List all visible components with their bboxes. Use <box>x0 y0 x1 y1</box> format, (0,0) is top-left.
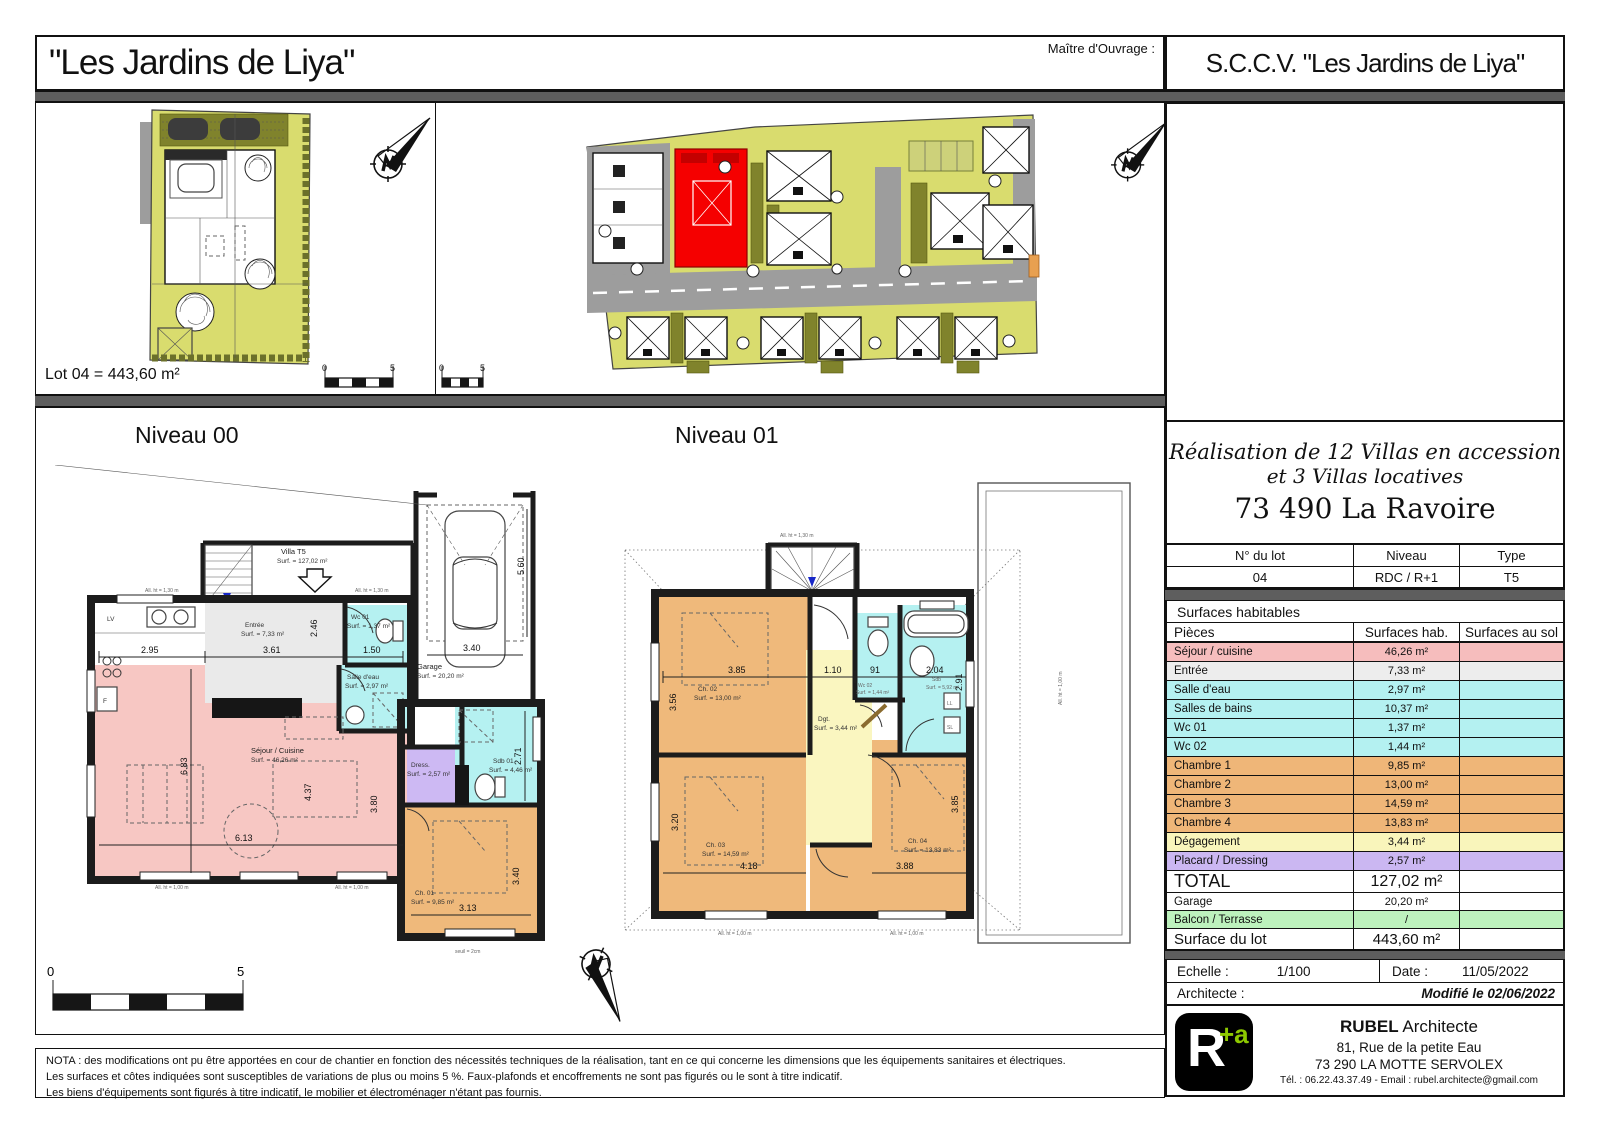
dim-garage-width: 3.40 <box>463 643 481 653</box>
firm-addr2: 73 290 LA MOTTE SERVOLEX <box>1253 1056 1565 1074</box>
svg-text:Wc 02: Wc 02 <box>858 683 872 689</box>
level1-title: Niveau 01 <box>675 422 779 449</box>
lot-table-values: 04 RDC / R+1 T5 <box>1165 567 1565 589</box>
nota-line2: Les surfaces et côtes indiquées sont sus… <box>46 1070 1154 1086</box>
svg-text:4.37: 4.37 <box>303 783 313 801</box>
echelle-date-row: Echelle : 1/100 Date : 11/05/2022 <box>1165 960 1565 983</box>
firm-info: RUBEL Architecte 81, Rue de la petite Ea… <box>1253 1016 1565 1086</box>
separator-band-panel2 <box>1165 950 1565 960</box>
svg-text:0: 0 <box>47 964 54 979</box>
svg-text:All. ht = 1,30 m: All. ht = 1,30 m <box>145 588 179 594</box>
svg-text:SL: SL <box>947 725 953 731</box>
surface-row: Chambre 19,85 m² <box>1165 757 1565 776</box>
parking-rows <box>593 153 663 263</box>
firm-name-rest: Architecte <box>1399 1017 1478 1036</box>
svg-text:All. ht = 1,00 m: All. ht = 1,00 m <box>335 885 369 891</box>
surface-row: Chambre 213,00 m² <box>1165 776 1565 795</box>
svg-text:Surf. = 2,97 m²: Surf. = 2,97 m² <box>345 683 389 690</box>
surfaces-title: Surfaces habitables <box>1165 601 1565 623</box>
plan-sheet: "Les Jardins de Liya" Maître d'Ouvrage :… <box>0 0 1600 1131</box>
nota-line1: NOTA : des modifications ont pu être app… <box>46 1054 1154 1070</box>
surface-row: Chambre 314,59 m² <box>1165 795 1565 814</box>
scale-bar-small-2: 0 5 <box>438 362 488 392</box>
svg-text:2.95: 2.95 <box>141 645 159 655</box>
stair-n01 <box>768 543 857 593</box>
svg-text:Ch. 01: Ch. 01 <box>415 890 435 897</box>
north-arrow-icon <box>558 930 648 1025</box>
owner-name: S.C.C.V. "Les Jardins de Liya" <box>1206 48 1524 79</box>
svg-text:All. ht = 1,00 m: All. ht = 1,00 m <box>155 885 189 891</box>
svg-text:3.20: 3.20 <box>670 813 680 831</box>
right-wing: Dress. Surf. = 2,57 m² Sdb 01 Surf. = 4,… <box>401 703 541 955</box>
surface-row: Séjour / cuisine46,26 m² <box>1165 643 1565 662</box>
lot-header-type: Type <box>1460 545 1563 566</box>
lot-area-label: Lot 04 = 443,60 m² <box>45 366 180 384</box>
level0-title: Niveau 00 <box>135 422 239 449</box>
svg-text:2.04: 2.04 <box>926 665 944 675</box>
balcon-row: Balcon / Terrasse / <box>1165 911 1565 929</box>
villa-block <box>983 205 1033 259</box>
svg-text:2.91: 2.91 <box>954 673 964 691</box>
lot-header-num: N° du lot <box>1167 545 1354 566</box>
villa-block <box>767 213 831 265</box>
svg-text:Surf. = 13,83 m²: Surf. = 13,83 m² <box>904 847 952 854</box>
svg-text:LL: LL <box>947 701 953 707</box>
surface-row: Entrée7,33 m² <box>1165 662 1565 681</box>
svg-text:6.13: 6.13 <box>235 833 253 843</box>
total-row: TOTAL 127,02 m² <box>1165 871 1565 893</box>
villa-surf: Surf. = 127,02 m² <box>277 558 328 565</box>
svg-text:3.56: 3.56 <box>668 693 678 711</box>
svg-text:4.18: 4.18 <box>740 861 758 871</box>
svg-text:2.46: 2.46 <box>309 619 319 637</box>
svg-text:Wc 01: Wc 01 <box>351 614 370 621</box>
lot-value-niveau: RDC / R+1 <box>1354 567 1460 587</box>
surface-row: Chambre 413,83 m² <box>1165 814 1565 833</box>
architecte-row: Architecte : Modifié le 02/06/2022 <box>1165 983 1565 1006</box>
scale-bar-main: 0 5 <box>45 960 255 1018</box>
villa-block <box>983 127 1029 173</box>
firm-contact: Tél. : 06.22.43.37.49 - Email : rubel.ar… <box>1253 1074 1565 1087</box>
svg-text:Dress.: Dress. <box>411 762 430 769</box>
svg-text:3.61: 3.61 <box>263 645 281 655</box>
project-title: "Les Jardins de Liya" <box>49 43 354 83</box>
svg-text:3.80: 3.80 <box>369 795 379 813</box>
kitchen-lv-label: LV <box>107 616 115 623</box>
realisation-line3: 73 490 La Ravoire <box>1234 492 1495 525</box>
plan-niveau01: All. ht = 1,00 m <box>610 465 1140 965</box>
separator-band-mid <box>35 395 1165 407</box>
date-label: Date : <box>1380 964 1428 979</box>
lot-value-num: 04 <box>1167 567 1354 587</box>
date-value: 11/05/2022 <box>1462 964 1529 979</box>
svg-text:2.71: 2.71 <box>513 747 523 765</box>
seuil-note: seuil = 2cm <box>455 949 480 955</box>
svg-text:Surf. = 14,59 m²: Surf. = 14,59 m² <box>702 851 750 858</box>
echelle-value: 1/100 <box>1277 964 1311 979</box>
surface-row: Salles de bains10,37 m² <box>1165 700 1565 719</box>
north-arrow-icon <box>358 108 434 192</box>
col-surfsol: Surfaces au sol <box>1460 623 1563 641</box>
surface-row: Dégagement3,44 m² <box>1165 833 1565 852</box>
lot-table-header: N° du lot Niveau Type <box>1165 545 1565 567</box>
svg-text:1.50: 1.50 <box>363 645 381 655</box>
owner-label: Maître d'Ouvrage : <box>1048 41 1155 56</box>
scale-bar-small: 0 5 <box>320 362 398 392</box>
north-arrow-icon <box>1100 110 1170 194</box>
svg-text:Surf. = 13,00 m²: Surf. = 13,00 m² <box>694 695 742 702</box>
svg-text:Ch. 04: Ch. 04 <box>908 838 928 845</box>
firm-addr1: 81, Rue de la petite Eau <box>1253 1039 1565 1057</box>
svg-text:Surf. = 1,37 m²: Surf. = 1,37 m² <box>347 623 391 630</box>
dim-garage-depth: 5.60 <box>516 557 526 575</box>
svg-text:3.88: 3.88 <box>896 861 914 871</box>
lot-header-niveau: Niveau <box>1354 545 1460 566</box>
plan-niveau00: Garage Surf. = 20,20 m² 3.40 5.60 Villa … <box>55 465 575 975</box>
nota-line3: Les biens d'équipements sont figurés à t… <box>46 1086 1154 1102</box>
svg-text:5: 5 <box>237 964 244 979</box>
firm-logo: R +a <box>1175 1013 1253 1091</box>
modified-label: Modifié le 02/06/2022 <box>1421 986 1563 1001</box>
garage-row: Garage 20,20 m² <box>1165 893 1565 911</box>
svg-text:Surf. = 46,26 m²: Surf. = 46,26 m² <box>251 757 299 764</box>
svg-text:1.10: 1.10 <box>824 665 842 675</box>
separator-band-panel1 <box>1165 589 1565 601</box>
separator-band-top <box>35 91 1565 102</box>
svg-text:3.85: 3.85 <box>728 665 746 675</box>
lot04-highlight <box>675 149 747 267</box>
architecte-label: Architecte : <box>1167 986 1245 1001</box>
svg-text:Surf. = 7,33 m²: Surf. = 7,33 m² <box>241 631 285 638</box>
svg-text:Surf. = 2,57 m²: Surf. = 2,57 m² <box>407 771 451 778</box>
realisation-line1: Réalisation de 12 Villas en accession <box>1169 440 1561 464</box>
title-block-left: "Les Jardins de Liya" Maître d'Ouvrage : <box>35 35 1165 91</box>
col-surfhab: Surfaces hab. <box>1354 623 1460 641</box>
lot-siteplan-drawing <box>140 106 325 368</box>
svg-text:Sdb 01: Sdb 01 <box>493 758 514 765</box>
svg-text:Garage: Garage <box>417 662 442 671</box>
villa-block <box>931 193 989 249</box>
svg-text:Ch. 02: Ch. 02 <box>698 686 718 693</box>
realisation-line2: et 3 Villas locatives <box>1267 464 1464 488</box>
terrace-outline: All. ht = 1,00 m <box>978 483 1130 943</box>
villa-label: Villa T5 <box>281 547 306 556</box>
svg-text:3.13: 3.13 <box>459 903 477 913</box>
svg-text:Séjour / Cuisine: Séjour / Cuisine <box>251 746 304 755</box>
svg-text:All. ht = 1,30 m: All. ht = 1,30 m <box>780 533 814 539</box>
svg-text:All. ht = 1,00 m: All. ht = 1,00 m <box>718 931 752 937</box>
lot-value-type: T5 <box>1460 567 1563 587</box>
svg-text:All. ht = 1,00 m: All. ht = 1,00 m <box>890 931 924 937</box>
svg-text:Surf. = 3,44 m²: Surf. = 3,44 m² <box>814 725 858 732</box>
svg-text:Ch. 03: Ch. 03 <box>706 842 726 849</box>
nota-box: NOTA : des modifications ont pu être app… <box>35 1048 1165 1098</box>
svg-text:6.83: 6.83 <box>179 757 189 775</box>
masterplan-drawing <box>575 105 1045 383</box>
svg-text:Surf. = 9,85 m²: Surf. = 9,85 m² <box>411 899 455 906</box>
svg-text:Sdb: Sdb <box>932 677 941 683</box>
svg-text:All. ht = 1,30 m: All. ht = 1,30 m <box>355 588 389 594</box>
svg-text:3.40: 3.40 <box>511 867 521 885</box>
svg-text:Surf. = 1,44 m²: Surf. = 1,44 m² <box>856 690 890 696</box>
svg-text:All. ht = 1,00 m: All. ht = 1,00 m <box>1058 672 1064 706</box>
svg-text:Surf. = 4,46 m²: Surf. = 4,46 m² <box>489 767 533 774</box>
col-pieces: Pièces <box>1167 623 1354 641</box>
svg-text:Salle d'eau: Salle d'eau <box>347 674 379 681</box>
surface-row: Wc 011,37 m² <box>1165 719 1565 738</box>
surfaces-col-headers: Pièces Surfaces hab. Surfaces au sol <box>1165 623 1565 643</box>
svg-text:Surf. = 20,20 m²: Surf. = 20,20 m² <box>417 673 465 680</box>
svg-text:91: 91 <box>870 665 880 675</box>
svg-text:Dgt.: Dgt. <box>818 716 830 723</box>
realisation-block: Réalisation de 12 Villas en accession et… <box>1165 420 1565 545</box>
echelle-label: Echelle : <box>1167 964 1229 979</box>
surface-row: Wc 021,44 m² <box>1165 738 1565 757</box>
firm-logo-plus-a: +a <box>1219 1019 1249 1050</box>
firm-name-bold: RUBEL <box>1340 1017 1399 1036</box>
surface-row: Salle d'eau2,97 m² <box>1165 681 1565 700</box>
firm-block: R +a RUBEL Architecte 81, Rue de la peti… <box>1165 1006 1565 1097</box>
surface-lot-row: Surface du lot 443,60 m² <box>1165 929 1565 950</box>
svg-text:3.85: 3.85 <box>950 795 960 813</box>
villa-block <box>767 151 831 201</box>
kitchen-f-label: F <box>103 698 107 705</box>
title-block-right: S.C.C.V. "Les Jardins de Liya" <box>1165 35 1565 91</box>
svg-text:Entrée: Entrée <box>245 622 265 629</box>
surface-row: Placard / Dressing2,57 m² <box>1165 852 1565 871</box>
